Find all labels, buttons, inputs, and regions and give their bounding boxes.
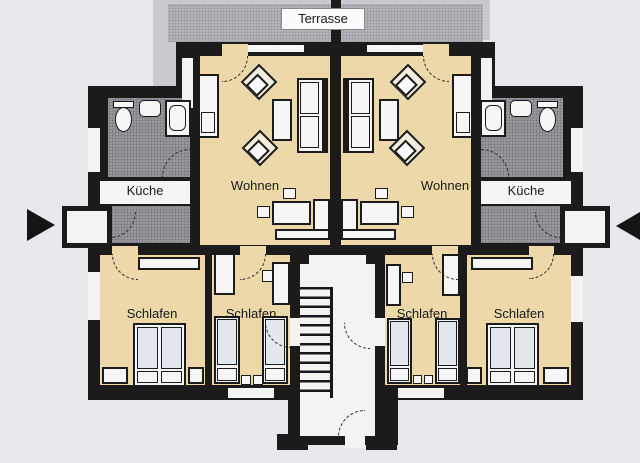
stairwell-foot-left <box>277 434 308 450</box>
sink-icon-right <box>510 100 532 117</box>
nightstand <box>188 367 204 384</box>
nightstand <box>466 367 482 384</box>
dresser-bedroom4 <box>471 257 533 270</box>
stair-pillar-right <box>366 255 375 264</box>
dining-chair-right-2 <box>375 188 388 199</box>
pillow <box>137 371 158 383</box>
sofa-left-cushion-2 <box>300 116 319 148</box>
bedroom1-text: Schlafen <box>127 306 178 321</box>
terrace-door-left <box>222 44 248 56</box>
nightstand <box>543 367 569 384</box>
toilet-icon-right <box>539 107 556 132</box>
mattress <box>390 321 409 366</box>
pillow <box>514 371 535 383</box>
bedroom1-label: Schlafen <box>112 306 192 321</box>
bedroom4-label: Schlafen <box>479 306 559 321</box>
kitchen-label-right: Küche <box>481 179 571 206</box>
mattress <box>161 327 182 369</box>
pillow <box>217 368 237 381</box>
window-bedroom1 <box>88 272 100 320</box>
coffee-table-right <box>379 99 399 141</box>
window-bath-right <box>571 128 583 172</box>
stairwell-foot-right <box>366 434 397 450</box>
coffee-table-left <box>272 99 292 141</box>
mattress <box>217 319 237 365</box>
mattress <box>438 321 457 366</box>
bedroom4-text: Schlafen <box>494 306 545 321</box>
staircase <box>300 287 333 398</box>
door-gap-apartment-left <box>290 318 300 346</box>
bedroom2-label: Schlafen <box>211 306 291 321</box>
window-bedroom4 <box>571 276 583 322</box>
desk-bedroom3 <box>386 264 401 306</box>
living-right-text: Wohnen <box>421 178 469 193</box>
dining-bench-left-h <box>275 229 330 240</box>
nightstand <box>102 367 128 384</box>
nightstand <box>253 375 263 385</box>
living-right-label: Wohnen <box>405 178 485 193</box>
toilet-icon-left <box>115 107 132 132</box>
entrance-arrow-left-icon <box>27 209 55 241</box>
mattress <box>137 327 158 369</box>
nightstand <box>424 375 433 384</box>
sofa-right-cushion-2 <box>351 116 370 148</box>
dining-bench-right-h <box>341 229 396 240</box>
bedroom3-label: Schlafen <box>384 306 460 321</box>
bathtub-inner-left <box>169 105 186 131</box>
sofa-right-cushion-1 <box>351 82 370 114</box>
living-left-text: Wohnen <box>231 178 279 193</box>
door-gap-apartment-right <box>375 318 385 346</box>
dresser-bedroom1 <box>138 257 200 270</box>
kitchen-right-text: Küche <box>508 183 545 198</box>
mattress <box>490 327 511 369</box>
sink-icon-left <box>139 100 161 117</box>
sideboard-left-door <box>201 112 215 133</box>
terrace-label: Terrasse <box>281 8 365 30</box>
pillow <box>265 368 285 381</box>
terrace-door-right <box>423 44 449 56</box>
vestibule-right <box>565 211 605 243</box>
pillow <box>161 371 182 383</box>
kitchen-label-left: Küche <box>100 179 190 206</box>
window-bedroom2-bottom <box>228 388 274 398</box>
nightstand <box>241 375 251 385</box>
mattress <box>514 327 535 369</box>
dining-chair-right-1 <box>401 206 414 218</box>
nightstand <box>413 375 422 384</box>
sofa-left-cushion-1 <box>300 82 319 114</box>
vestibule-left <box>67 211 107 243</box>
bedroom3-text: Schlafen <box>397 306 448 321</box>
terrace-label-text: Terrasse <box>298 11 348 26</box>
bathtub-inner-right <box>485 105 502 131</box>
window-bedroom3-bottom <box>398 388 444 398</box>
pillow <box>438 368 457 381</box>
desk-bedroom2 <box>214 253 235 295</box>
bedroom2-text: Schlafen <box>226 306 277 321</box>
floorplan: Küche Küche <box>0 0 640 463</box>
window-living-left-top <box>246 44 304 53</box>
living-left-label: Wohnen <box>215 178 295 193</box>
stair-pillar-left <box>300 255 309 264</box>
dining-chair-left-1 <box>257 206 270 218</box>
pillow <box>390 368 409 381</box>
entrance-arrow-right-icon <box>616 212 640 240</box>
chair-bedroom3 <box>402 272 413 283</box>
kitchen-left-text: Küche <box>127 183 164 198</box>
window-living-right-top <box>367 44 425 53</box>
dining-table-right <box>360 201 399 225</box>
dining-table-left <box>272 201 311 225</box>
pillow <box>490 371 511 383</box>
wardrobe-bedroom2 <box>272 262 290 305</box>
sideboard-right-door <box>456 112 470 133</box>
window-bath-left <box>88 128 100 172</box>
